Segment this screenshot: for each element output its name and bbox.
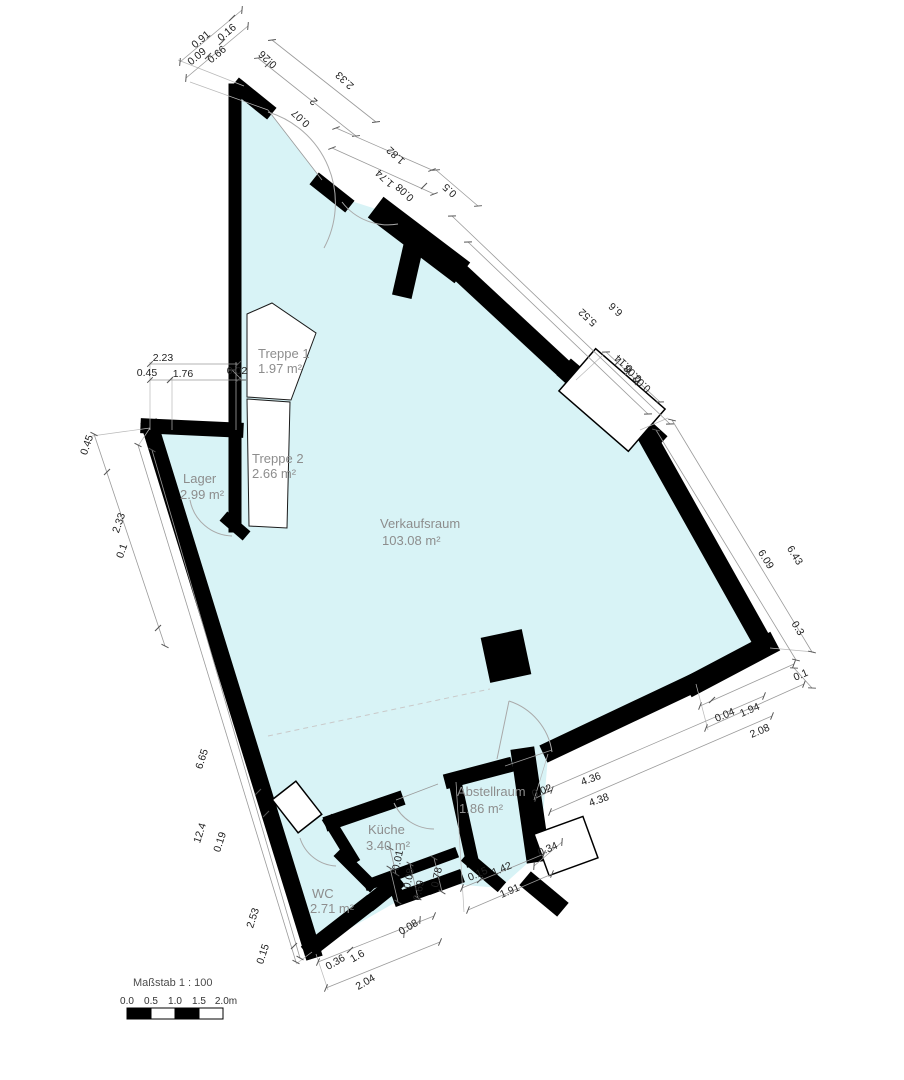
dim-label: 6.6 xyxy=(606,300,625,319)
dim-label: 4.38 xyxy=(587,791,610,809)
dim-label: 0.19 xyxy=(211,830,229,853)
dim-label: 2.33 xyxy=(333,69,356,92)
scale-label: Maßstab 1 : 100 xyxy=(133,977,213,989)
room-area-abstellraum: 1.86 m² xyxy=(459,801,504,816)
scale-segment xyxy=(175,1008,199,1019)
dim-label: 0.1 xyxy=(792,667,810,684)
dim-label: 1.82 xyxy=(384,144,407,167)
wall-segment-lager-top xyxy=(148,426,236,430)
scale-tick: 1.0 xyxy=(168,996,182,1007)
room-area-wc: 2.71 m² xyxy=(310,901,355,916)
room-area-verkaufsraum: 103.08 m² xyxy=(382,533,441,548)
room-label-treppe1: Treppe 1 xyxy=(258,346,310,361)
dim-label: 2.33 xyxy=(110,511,128,534)
room-label-lager: Lager xyxy=(183,471,217,486)
floor-plan-canvas: 0.91 0.16 0.09 0.66 0.26 2.33 2 0.07 1.8… xyxy=(0,0,904,1080)
dim-label: 0.26 xyxy=(256,48,279,71)
dim-label: 1.74 xyxy=(373,167,396,190)
room-area-lager: 2.99 m² xyxy=(180,487,225,502)
dim-label: 6.43 xyxy=(784,544,805,568)
room-label-abstellraum: Abstellraum xyxy=(457,784,526,799)
room-area-kueche: 3.40 m² xyxy=(366,838,411,853)
scale-tick: 2.0m xyxy=(215,996,237,1007)
dim-label: 2.23 xyxy=(153,352,174,364)
dim-label: 12.4 xyxy=(191,821,209,844)
scale-segment xyxy=(199,1008,223,1019)
dim-label: 6.65 xyxy=(193,747,211,770)
room-label-verkaufsraum: Verkaufsraum xyxy=(380,516,460,531)
dim-label: 1.76 xyxy=(173,368,194,380)
dim-label: 0.15 xyxy=(254,942,272,965)
dim-label: 1.94 xyxy=(738,701,762,720)
room-area-treppe1: 1.97 m² xyxy=(258,361,303,376)
scale-segment xyxy=(151,1008,175,1019)
dim-label: 4.36 xyxy=(579,770,602,788)
room-label-wc: WC xyxy=(312,886,334,901)
scale-bar: Maßstab 1 : 100 0.0 0.5 1.0 1.5 2.0m xyxy=(120,977,237,1019)
dim-label: 1.6 xyxy=(348,947,367,965)
floor-plan-page: 0.91 0.16 0.09 0.66 0.26 2.33 2 0.07 1.8… xyxy=(0,0,904,1080)
dim-label: 0.36 xyxy=(324,952,348,973)
dim-label: 0.04 xyxy=(713,706,737,725)
dim-label: 0.16 xyxy=(215,21,238,43)
dim-label: 0.02 xyxy=(227,365,248,377)
room-label-treppe2: Treppe 2 xyxy=(252,451,304,466)
dim-label: 0.3 xyxy=(789,619,807,638)
scale-tick: 0.0 xyxy=(120,996,134,1007)
room-area-treppe2: 2.66 m² xyxy=(252,466,297,481)
dim-label: 0.45 xyxy=(78,433,96,456)
wall-segment xyxy=(532,884,556,904)
room-label-kueche: Küche xyxy=(368,822,405,837)
scale-tick: 0.5 xyxy=(144,996,158,1007)
dim-label: 5.52 xyxy=(576,306,599,329)
dim-label: 0.45 xyxy=(137,367,158,379)
dim-label: 2.53 xyxy=(244,906,262,929)
dim-label: 0.07 xyxy=(289,107,312,130)
dim-label: 0.66 xyxy=(205,43,228,65)
dim-label: 0.08 xyxy=(397,917,421,938)
dim-label: 0.5 xyxy=(440,181,459,200)
wall-segment xyxy=(404,252,412,287)
dim-label: 6.09 xyxy=(755,548,776,572)
scale-tick: 1.5 xyxy=(192,996,206,1007)
dim-label: 0.1 xyxy=(114,542,130,560)
scale-segment xyxy=(127,1008,151,1019)
